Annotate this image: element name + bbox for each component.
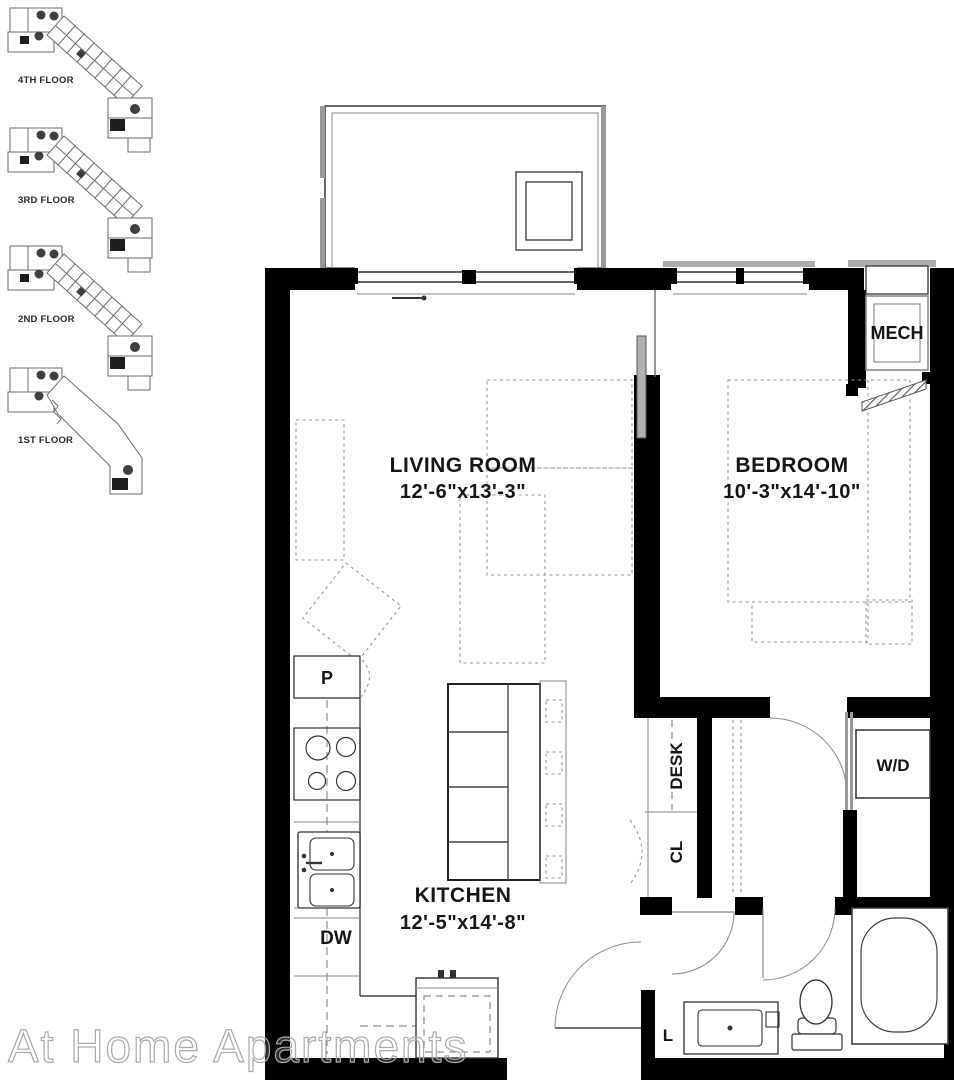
floor-plan-canvas: 4TH FLOOR 3RD FLOOR 2ND FLOOR 1ST FLOOR bbox=[0, 0, 954, 1080]
accent-chair bbox=[303, 563, 401, 661]
closet-bifold-door bbox=[630, 820, 642, 884]
living-room-dims: 12'-6"x13'-3" bbox=[400, 481, 526, 503]
keyplan-2nd-label: 2ND FLOOR bbox=[18, 314, 75, 325]
dishwasher-label: DW bbox=[320, 928, 352, 949]
walls bbox=[265, 266, 954, 1080]
kitchen-name: KITCHEN bbox=[415, 884, 512, 907]
linen-label: L bbox=[663, 1026, 673, 1045]
balcony bbox=[320, 106, 606, 268]
closet-label: CL bbox=[667, 841, 686, 864]
watermark: At Home Apartments bbox=[8, 1020, 468, 1072]
balcony-grill bbox=[516, 172, 582, 250]
bathroom-door-2 bbox=[763, 908, 835, 980]
sliding-door bbox=[637, 336, 646, 438]
bedroom-name: BEDROOM bbox=[735, 454, 848, 477]
bedroom-door bbox=[770, 718, 847, 797]
keyplan-3rd-label: 3RD FLOOR bbox=[18, 195, 75, 206]
bathtub bbox=[852, 908, 948, 1044]
kitchen-elements bbox=[294, 656, 641, 1058]
mech-door bbox=[862, 380, 926, 411]
stove bbox=[294, 728, 360, 800]
vanity-sink bbox=[684, 1002, 779, 1054]
bathroom-door-1 bbox=[672, 912, 734, 974]
keyplan-1st-floor: 1ST FLOOR bbox=[8, 368, 142, 494]
kitchen-island bbox=[448, 681, 566, 883]
keyplan-4th-label: 4TH FLOOR bbox=[18, 75, 74, 86]
desk-label: DESK bbox=[667, 742, 686, 790]
entry-door bbox=[555, 942, 641, 1028]
floor-plan: 4TH FLOOR 3RD FLOOR 2ND FLOOR 1ST FLOOR bbox=[0, 0, 954, 1080]
keyplan-1st-label: 1ST FLOOR bbox=[18, 435, 73, 446]
bed-dashed bbox=[728, 380, 912, 644]
washer-dryer-label: W/D bbox=[876, 756, 909, 775]
pantry-label: P bbox=[321, 668, 333, 688]
fixture-labels: MECH DESK CL W/D P DW L bbox=[320, 323, 923, 1045]
bedroom-dims: 10'-3"x14'-10" bbox=[723, 481, 861, 503]
living-room-name: LIVING ROOM bbox=[390, 454, 537, 477]
kitchen-dims: 12'-5"x14'-8" bbox=[400, 912, 526, 934]
mech-label: MECH bbox=[871, 323, 924, 343]
living-room-furniture bbox=[296, 380, 632, 663]
pantry-door bbox=[360, 660, 370, 698]
bathroom-elements bbox=[672, 908, 948, 1054]
toilet bbox=[792, 980, 842, 1050]
mech-closet bbox=[862, 296, 928, 411]
kitchen-sink bbox=[298, 832, 360, 908]
keyplans: 4TH FLOOR 3RD FLOOR 2ND FLOOR 1ST FLOOR bbox=[8, 8, 152, 494]
